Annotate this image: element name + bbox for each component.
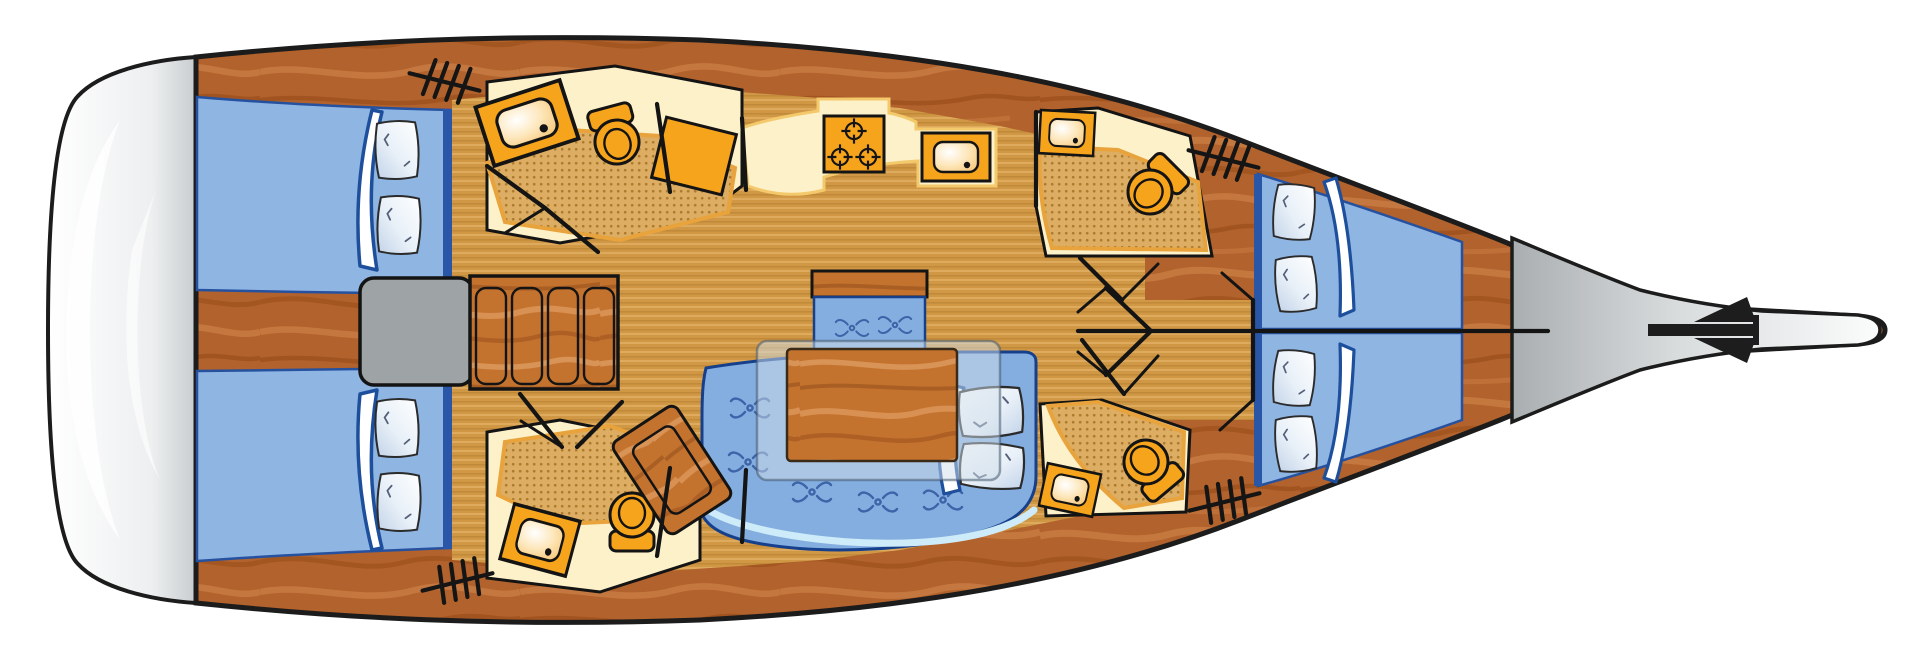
pillow bbox=[377, 195, 422, 254]
aft-cabin-bottom-berth bbox=[197, 368, 450, 561]
stove-icon bbox=[824, 116, 884, 172]
galley-sink-icon bbox=[922, 133, 990, 181]
aft-cabin-top bbox=[197, 97, 452, 295]
floorplan-canvas bbox=[0, 0, 1920, 660]
yacht-floorplan bbox=[0, 0, 1920, 660]
pillow bbox=[1273, 415, 1318, 473]
pillow bbox=[377, 472, 422, 531]
stern-platform bbox=[48, 57, 196, 603]
aft-cabin-bottom bbox=[197, 367, 452, 561]
engine-compartment bbox=[360, 278, 473, 385]
companionway-steps bbox=[470, 276, 618, 389]
bench-backrest bbox=[812, 271, 927, 297]
head-aft-top bbox=[475, 66, 742, 243]
forward-cabin-bottom-mattress-edge bbox=[1254, 333, 1262, 486]
pillow bbox=[1273, 255, 1318, 313]
forward-cabin-top-mattress-edge bbox=[1254, 174, 1262, 329]
pillow bbox=[1271, 349, 1316, 407]
sink-icon bbox=[1039, 110, 1096, 156]
pillow bbox=[375, 398, 420, 457]
steps-base bbox=[470, 276, 618, 389]
pillow bbox=[1271, 183, 1316, 241]
sink-icon bbox=[1039, 463, 1101, 517]
foredeck bbox=[1512, 238, 1880, 422]
aft-cabin-bottom-mattress-edge bbox=[443, 367, 452, 549]
aft-cabin-top-mattress-edge bbox=[443, 109, 452, 295]
salon-table bbox=[787, 349, 957, 461]
pillow bbox=[375, 120, 420, 179]
